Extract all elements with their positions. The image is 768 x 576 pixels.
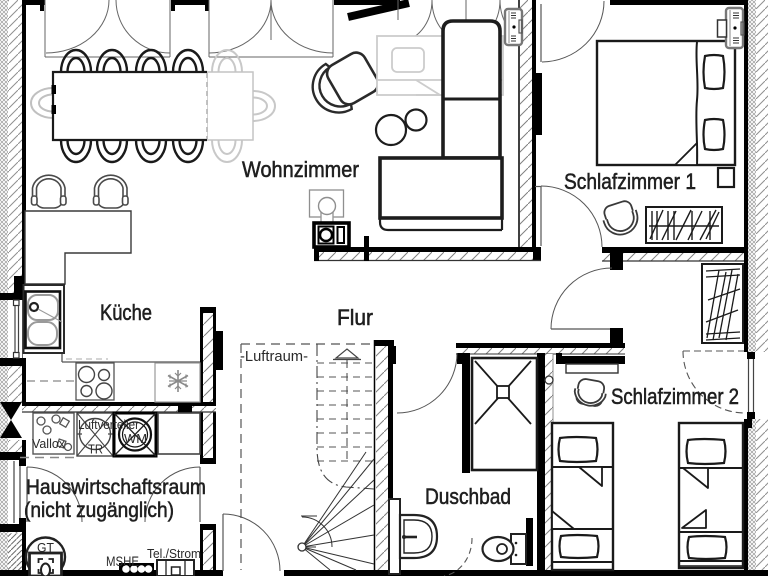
svg-text:Hauswirtschaftsraum: Hauswirtschaftsraum (26, 475, 206, 499)
svg-text:Luftverteiler: Luftverteiler (78, 418, 139, 432)
svg-text:Flur: Flur (337, 305, 373, 330)
svg-text:Duschbad: Duschbad (425, 484, 511, 509)
svg-text:WM: WM (124, 432, 147, 446)
svg-text:TR: TR (88, 443, 103, 457)
svg-text:MSHE: MSHE (106, 554, 139, 569)
svg-text:Küche: Küche (100, 300, 152, 325)
svg-text:-Luftraum-: -Luftraum- (240, 348, 308, 365)
svg-text:Tel./Strom: Tel./Strom (147, 547, 201, 561)
svg-text:Wohnzimmer: Wohnzimmer (242, 157, 359, 182)
svg-text:Schlafzimmer 1: Schlafzimmer 1 (564, 169, 696, 194)
svg-text:(nicht zugänglich): (nicht zugänglich) (24, 498, 174, 522)
svg-text:Vallox: Vallox (32, 437, 66, 451)
svg-text:GT: GT (37, 540, 54, 555)
svg-text:Schlafzimmer 2: Schlafzimmer 2 (611, 384, 739, 409)
